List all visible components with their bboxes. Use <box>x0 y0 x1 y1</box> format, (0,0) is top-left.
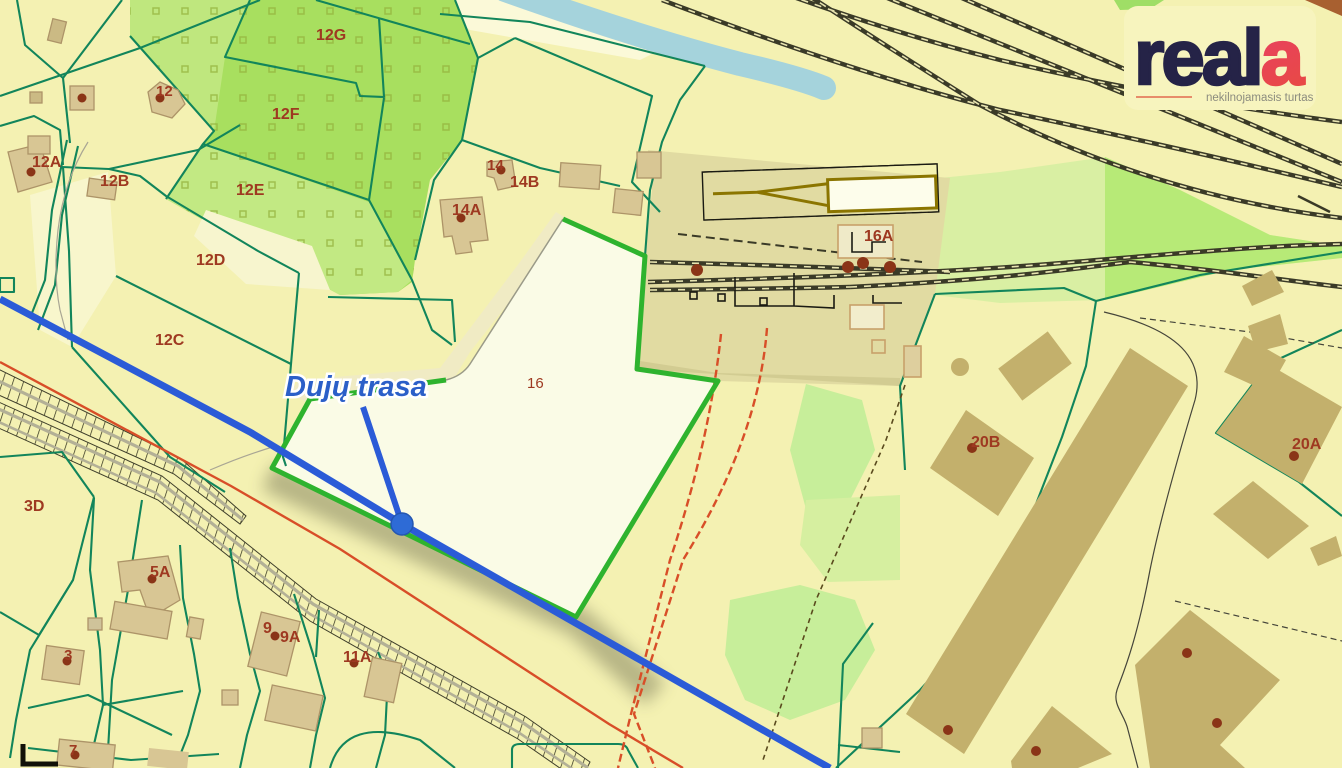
svg-text:16A: 16A <box>864 228 894 245</box>
svg-text:12F: 12F <box>272 106 300 123</box>
svg-text:reala: reala <box>1134 13 1305 101</box>
svg-text:12A: 12A <box>32 154 62 171</box>
svg-text:12B: 12B <box>100 173 129 190</box>
svg-text:14B: 14B <box>510 174 539 191</box>
svg-text:20A: 20A <box>1292 436 1322 453</box>
svg-text:nekilnojamasis turtas: nekilnojamasis turtas <box>1206 92 1314 104</box>
svg-text:11A: 11A <box>343 649 372 666</box>
svg-text:16: 16 <box>527 375 544 392</box>
svg-text:12C: 12C <box>155 332 185 349</box>
svg-text:3D: 3D <box>24 498 44 515</box>
svg-text:7: 7 <box>69 742 77 759</box>
svg-text:3: 3 <box>64 647 72 664</box>
svg-text:14: 14 <box>487 157 504 174</box>
svg-text:14A: 14A <box>452 202 482 219</box>
svg-text:9A: 9A <box>280 629 301 646</box>
svg-text:12E: 12E <box>236 182 265 199</box>
svg-text:12D: 12D <box>196 252 225 269</box>
svg-text:12G: 12G <box>316 27 346 44</box>
svg-text:12: 12 <box>156 83 173 100</box>
svg-text:9: 9 <box>263 620 272 637</box>
svg-text:Dujų trasa: Dujų trasa <box>285 371 427 403</box>
svg-text:5A: 5A <box>150 564 171 581</box>
svg-text:20B: 20B <box>971 434 1000 451</box>
